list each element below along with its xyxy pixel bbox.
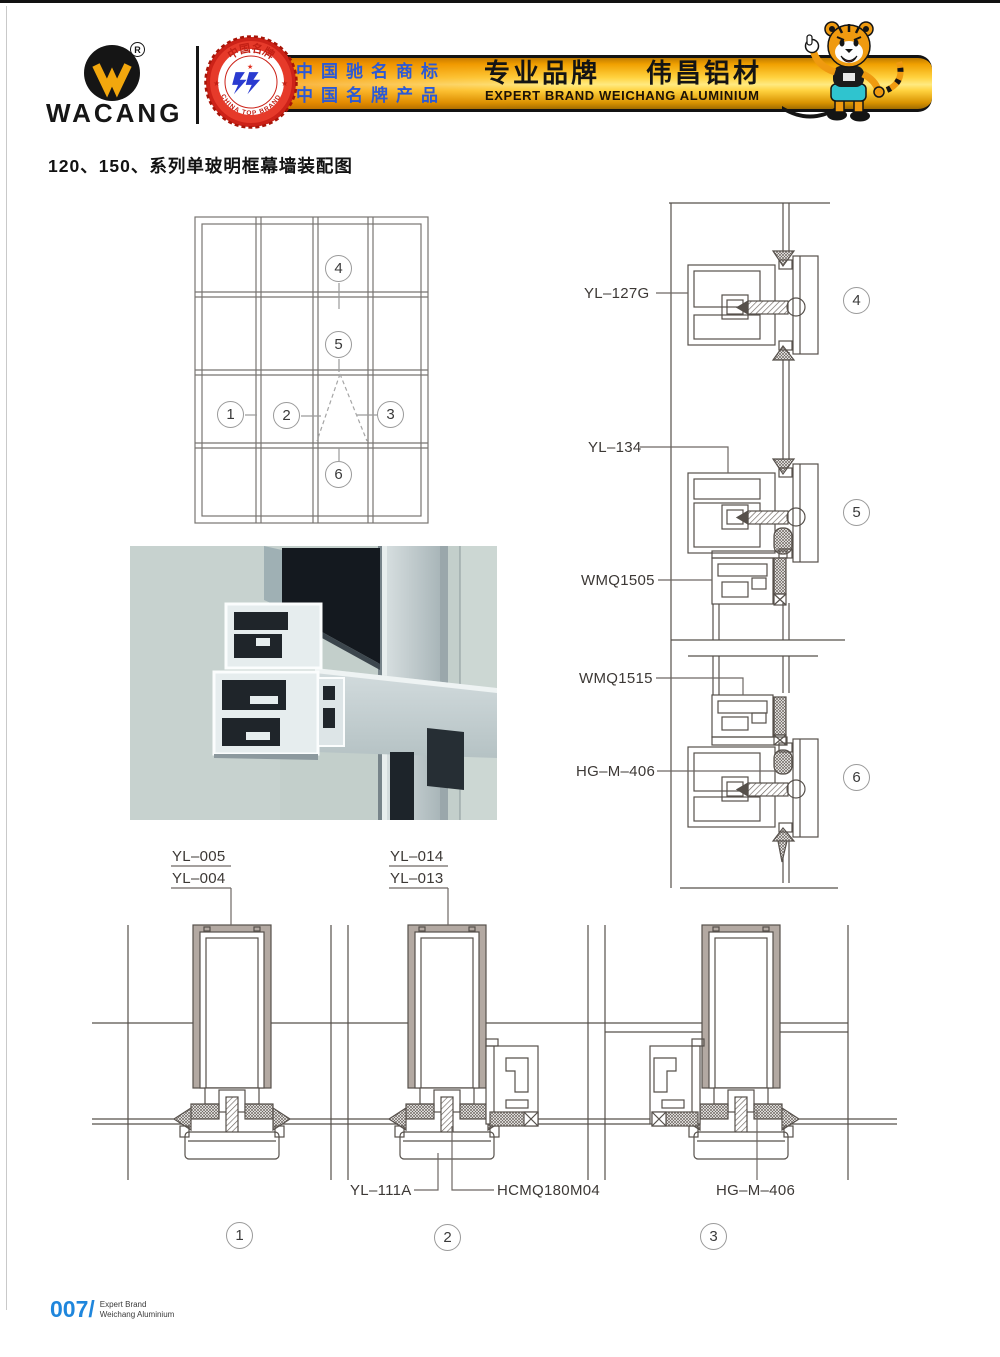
vent-opening-dashed-lines <box>317 374 367 441</box>
label-wmq1505: WMQ1505 <box>581 572 655 589</box>
plan-detail-2-drawing <box>389 925 538 1159</box>
section-detail-5-drawing <box>688 459 818 640</box>
profile-photo-image <box>130 546 497 820</box>
label-hg-m-406-right: HG–M–406 <box>576 763 655 780</box>
label-yl-013: YL–013 <box>390 870 444 887</box>
footer-caption: Expert Brand Weichang Aluminium <box>100 1296 175 1320</box>
section-marker-6: 6 <box>843 764 870 791</box>
footer-caption-line1: Expert Brand <box>100 1300 175 1310</box>
label-hcmq180m04: HCMQ180M04 <box>497 1182 600 1199</box>
section-marker-4: 4 <box>843 287 870 314</box>
label-wmq1515: WMQ1515 <box>579 670 653 687</box>
label-yl-134: YL–134 <box>588 439 642 456</box>
page-number: 007/ <box>50 1296 95 1322</box>
elevation-diagram <box>195 217 428 523</box>
right-label-leaders <box>640 293 776 771</box>
elevation-marker-4: 4 <box>325 255 352 282</box>
plan-marker-2: 2 <box>434 1224 461 1251</box>
label-yl-111a: YL–111A <box>350 1182 412 1199</box>
plan-marker-1: 1 <box>226 1222 253 1249</box>
footer-caption-line2: Weichang Aluminium <box>100 1310 175 1320</box>
elevation-marker-3: 3 <box>377 401 404 428</box>
section-detail-4-drawing <box>688 251 818 360</box>
label-yl-127g: YL–127G <box>584 285 649 302</box>
label-yl-014: YL–014 <box>390 848 444 865</box>
plan-detail-3-drawing <box>650 925 799 1159</box>
label-yl-004: YL–004 <box>172 870 226 887</box>
elevation-marker-2: 2 <box>273 402 300 429</box>
plan-marker-3: 3 <box>700 1223 727 1250</box>
label-yl-005: YL–005 <box>172 848 226 865</box>
elevation-marker-5: 5 <box>325 331 352 358</box>
horizontal-section-details <box>92 866 897 1190</box>
catalog-page: R WACANG 中国驰名商标 中国名牌产品 专业品牌 伟昌铝材 EXPERT … <box>0 0 1000 1357</box>
section-marker-5: 5 <box>843 499 870 526</box>
label-hg-m-406-bottom: HG–M–406 <box>716 1182 795 1199</box>
vertical-section-details <box>640 203 845 888</box>
plan-detail-1-drawing <box>174 925 290 1159</box>
section-detail-6-drawing <box>688 656 818 862</box>
elevation-marker-6: 6 <box>325 461 352 488</box>
page-footer: 007/ Expert Brand Weichang Aluminium <box>50 1296 174 1322</box>
elevation-marker-1: 1 <box>217 401 244 428</box>
